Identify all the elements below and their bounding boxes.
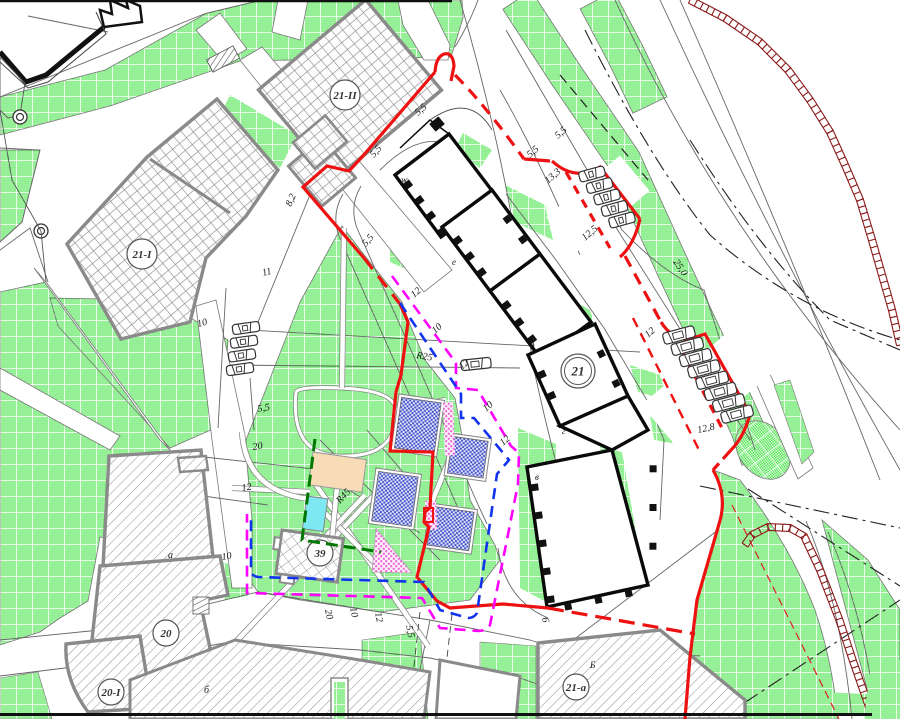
svg-text:39: 39 <box>314 548 327 560</box>
svg-text:5,5: 5,5 <box>257 402 271 415</box>
svg-text:20: 20 <box>252 441 263 453</box>
svg-text:а: а <box>168 550 173 561</box>
svg-text:ж: ж <box>400 175 409 185</box>
svg-text:12: 12 <box>241 482 252 494</box>
svg-text:21-II: 21-II <box>332 90 357 102</box>
svg-text:20-I: 20-I <box>101 687 122 699</box>
svg-text:20: 20 <box>160 628 173 640</box>
svg-text:в: в <box>535 472 539 482</box>
svg-text:г: г <box>562 426 566 436</box>
svg-text:21: 21 <box>571 364 585 379</box>
svg-text:21-I: 21-I <box>132 249 153 261</box>
svg-text:д: д <box>530 341 535 351</box>
svg-text:10: 10 <box>221 551 232 563</box>
svg-text:21-а: 21-а <box>565 682 587 694</box>
svg-text:е: е <box>452 257 456 267</box>
svg-text:Б: Б <box>589 660 596 670</box>
